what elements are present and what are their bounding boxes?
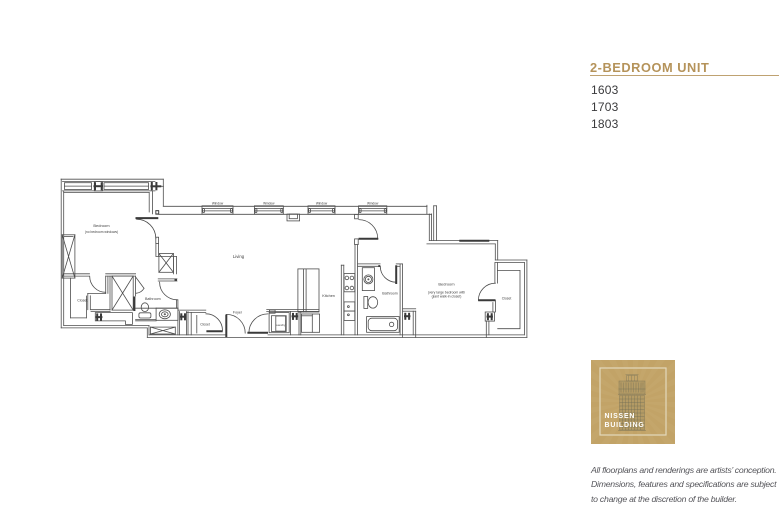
svg-text:Bedroom: Bedroom bbox=[438, 281, 455, 286]
svg-text:Window: Window bbox=[316, 202, 328, 206]
svg-text:Closet: Closet bbox=[77, 298, 87, 302]
svg-text:Kitchen: Kitchen bbox=[322, 294, 335, 298]
svg-text:Bathroom: Bathroom bbox=[382, 292, 398, 296]
svg-text:(no bedroom windows): (no bedroom windows) bbox=[85, 230, 118, 234]
svg-text:Bedroom: Bedroom bbox=[93, 223, 110, 228]
svg-text:Closet: Closet bbox=[200, 323, 210, 327]
svg-text:Foyer: Foyer bbox=[233, 310, 243, 314]
svg-text:Bathroom: Bathroom bbox=[145, 297, 161, 301]
svg-text:giant walk-in closet): giant walk-in closet) bbox=[432, 294, 462, 298]
svg-text:Closet: Closet bbox=[502, 297, 512, 301]
svg-text:Window: Window bbox=[263, 202, 275, 206]
svg-text:Living: Living bbox=[233, 254, 245, 259]
svg-text:Window: Window bbox=[367, 202, 379, 206]
svg-text:Window: Window bbox=[212, 202, 224, 206]
svg-text:Laundry: Laundry bbox=[276, 323, 286, 327]
